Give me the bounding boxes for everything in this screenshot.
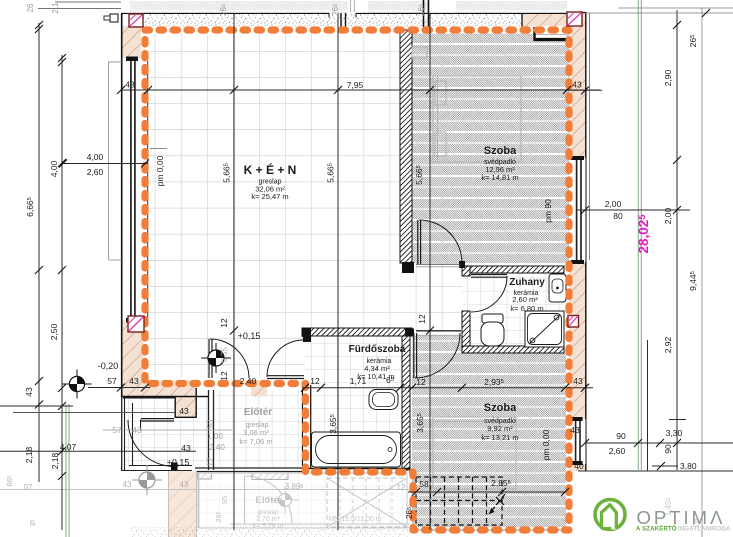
svg-text:2,18: 2,18 bbox=[50, 452, 60, 469]
svg-text:1,71: 1,71 bbox=[350, 376, 367, 386]
svg-text:Szoba: Szoba bbox=[484, 145, 517, 157]
svg-text:43: 43 bbox=[180, 480, 189, 489]
svg-text:53: 53 bbox=[206, 419, 215, 428]
svg-text:9,92 m²: 9,92 m² bbox=[487, 424, 513, 433]
svg-text:12: 12 bbox=[397, 483, 406, 492]
svg-text:k= 6,80 m: k= 6,80 m bbox=[510, 304, 543, 313]
svg-text:12: 12 bbox=[417, 314, 427, 324]
svg-text:-0,20: -0,20 bbox=[98, 361, 119, 371]
svg-text:2,00: 2,00 bbox=[605, 199, 622, 209]
svg-text:pm 90: pm 90 bbox=[543, 199, 553, 223]
svg-text:43: 43 bbox=[570, 425, 580, 435]
svg-text:43: 43 bbox=[129, 376, 139, 386]
svg-text:2,50: 2,50 bbox=[49, 323, 59, 340]
svg-text:4,00: 4,00 bbox=[49, 160, 59, 177]
svg-text:+0,15: +0,15 bbox=[238, 331, 261, 341]
svg-text:3,80: 3,80 bbox=[680, 461, 697, 471]
svg-text:INGATLANIRODA: INGATLANIRODA bbox=[678, 527, 731, 533]
svg-text:57: 57 bbox=[107, 376, 117, 386]
svg-text:OPTIMΛ: OPTIMΛ bbox=[637, 507, 726, 528]
svg-text:2,92: 2,92 bbox=[663, 336, 673, 353]
svg-text:Előtér: Előtér bbox=[244, 407, 272, 418]
svg-text:Előtér: Előtér bbox=[256, 495, 283, 506]
svg-text:40: 40 bbox=[574, 461, 584, 471]
svg-text:43: 43 bbox=[179, 406, 189, 416]
svg-text:3,70 m²: 3,70 m² bbox=[256, 516, 280, 523]
svg-text:43: 43 bbox=[125, 80, 135, 90]
svg-text:7,95: 7,95 bbox=[347, 80, 364, 90]
svg-text:58: 58 bbox=[419, 479, 429, 489]
svg-text:28,025: 28,025 bbox=[636, 215, 651, 254]
svg-text:k= 13,21 m: k= 13,21 m bbox=[481, 433, 518, 442]
svg-text:12: 12 bbox=[219, 318, 229, 328]
svg-text:2,00: 2,00 bbox=[663, 207, 673, 224]
svg-text:greslap: greslap bbox=[257, 509, 279, 516]
svg-text:Szoba: Szoba bbox=[484, 402, 517, 414]
svg-text:A SZAKÉRTŐ: A SZAKÉRTŐ bbox=[636, 525, 677, 533]
svg-text:pm 0,00: pm 0,00 bbox=[155, 155, 165, 186]
svg-text:MN 16,5/11,00 m: MN 16,5/11,00 m bbox=[328, 516, 381, 523]
svg-text:k= 5,79 m: k= 5,79 m bbox=[253, 523, 284, 530]
svg-text:90: 90 bbox=[616, 431, 626, 441]
svg-text:Zuhany: Zuhany bbox=[509, 277, 545, 288]
svg-text:4,00: 4,00 bbox=[87, 152, 104, 162]
svg-text:2,60 m²: 2,60 m² bbox=[512, 295, 538, 304]
svg-text:2,40: 2,40 bbox=[240, 376, 257, 386]
svg-text:k= 14,81 m: k= 14,81 m bbox=[481, 173, 518, 182]
svg-text:k= 7,06 m: k= 7,06 m bbox=[239, 437, 272, 446]
svg-text:pm 0,00: pm 0,00 bbox=[541, 429, 551, 460]
svg-text:43: 43 bbox=[572, 80, 582, 90]
svg-text:K + É + N: K + É + N bbox=[244, 162, 297, 177]
svg-text:43: 43 bbox=[123, 480, 132, 489]
svg-text:43: 43 bbox=[132, 425, 142, 435]
svg-text:2,60: 2,60 bbox=[87, 167, 104, 177]
svg-text:95: 95 bbox=[220, 496, 229, 504]
svg-text:12: 12 bbox=[206, 457, 215, 466]
svg-text:Fürdőszoba: Fürdőszoba bbox=[349, 344, 406, 355]
svg-text:2,18: 2,18 bbox=[24, 446, 34, 463]
svg-text:12: 12 bbox=[416, 377, 426, 387]
svg-text:26: 26 bbox=[26, 3, 35, 12]
svg-text:43: 43 bbox=[181, 443, 191, 453]
svg-text:80: 80 bbox=[613, 211, 623, 221]
svg-text:43: 43 bbox=[24, 387, 34, 397]
svg-text:43: 43 bbox=[573, 376, 583, 386]
svg-text:+0,15: +0,15 bbox=[167, 458, 190, 468]
svg-text:07: 07 bbox=[24, 483, 33, 492]
svg-text:2,1: 2,1 bbox=[51, 2, 60, 14]
svg-text:90: 90 bbox=[663, 444, 673, 454]
svg-text:k= 25,47 m: k= 25,47 m bbox=[251, 192, 288, 201]
svg-text:4,07: 4,07 bbox=[60, 442, 77, 452]
svg-text:1,00: 1,00 bbox=[207, 432, 223, 441]
svg-text:2,60: 2,60 bbox=[609, 446, 626, 456]
svg-text:3,06 m²: 3,06 m² bbox=[243, 428, 269, 437]
svg-text:12: 12 bbox=[219, 371, 229, 381]
svg-text:2,40: 2,40 bbox=[209, 443, 225, 452]
svg-text:9,35: 9,35 bbox=[220, 347, 229, 363]
svg-text:12: 12 bbox=[310, 376, 320, 386]
svg-text:2,90: 2,90 bbox=[663, 69, 673, 86]
svg-text:57: 57 bbox=[112, 425, 122, 435]
svg-text:3,30: 3,30 bbox=[666, 428, 683, 438]
